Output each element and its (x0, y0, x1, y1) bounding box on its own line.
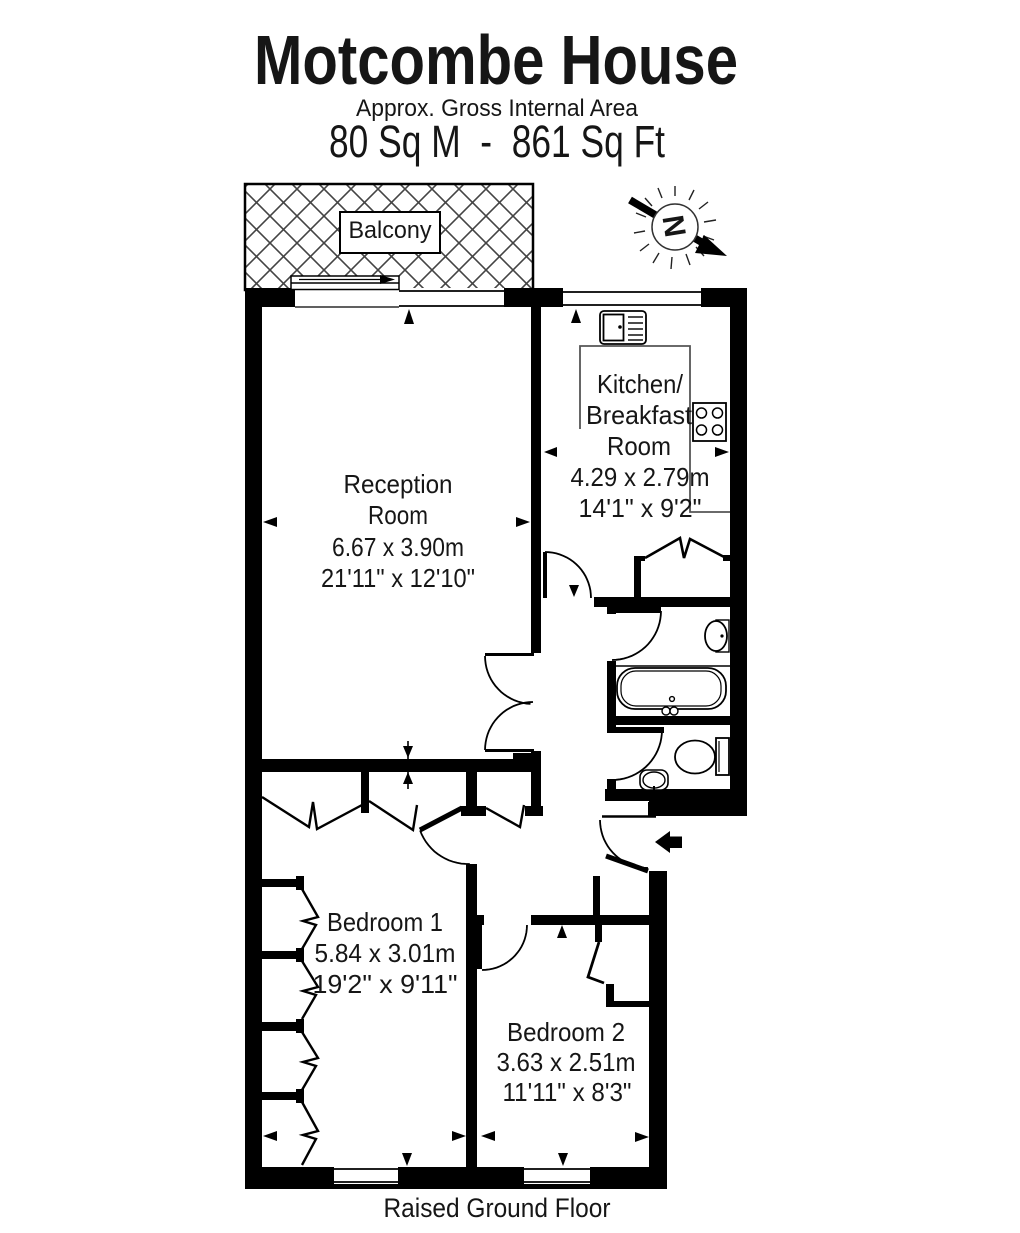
svg-text:Balcony: Balcony (349, 217, 432, 244)
svg-text:Room: Room (368, 500, 428, 530)
svg-text:21'11" x 12'10": 21'11" x 12'10" (321, 563, 475, 593)
svg-text:80 Sq M - 861 Sq Ft: 80 Sq M - 861 Sq Ft (329, 116, 665, 167)
svg-text:Breakfast: Breakfast (586, 400, 693, 430)
svg-text:Raised Ground Floor: Raised Ground Floor (384, 1193, 611, 1223)
svg-text:5.84 x 3.01m: 5.84 x 3.01m (315, 938, 456, 968)
svg-text:Motcombe House: Motcombe House (254, 21, 738, 99)
svg-text:19'2" x 9'11": 19'2" x 9'11" (313, 969, 458, 999)
svg-text:Room: Room (607, 431, 671, 461)
svg-text:11'11" x 8'3": 11'11" x 8'3" (503, 1077, 632, 1107)
svg-text:Reception: Reception (344, 469, 453, 499)
svg-text:Kitchen/: Kitchen/ (597, 369, 684, 399)
svg-text:6.67 x 3.90m: 6.67 x 3.90m (332, 532, 464, 562)
svg-text:14'1" x 9'2": 14'1" x 9'2" (579, 493, 702, 523)
svg-text:3.63 x 2.51m: 3.63 x 2.51m (497, 1047, 636, 1077)
svg-text:Bedroom 2: Bedroom 2 (507, 1017, 625, 1047)
svg-text:Bedroom 1: Bedroom 1 (327, 907, 443, 937)
svg-text:4.29 x 2.79m: 4.29 x 2.79m (571, 462, 710, 492)
